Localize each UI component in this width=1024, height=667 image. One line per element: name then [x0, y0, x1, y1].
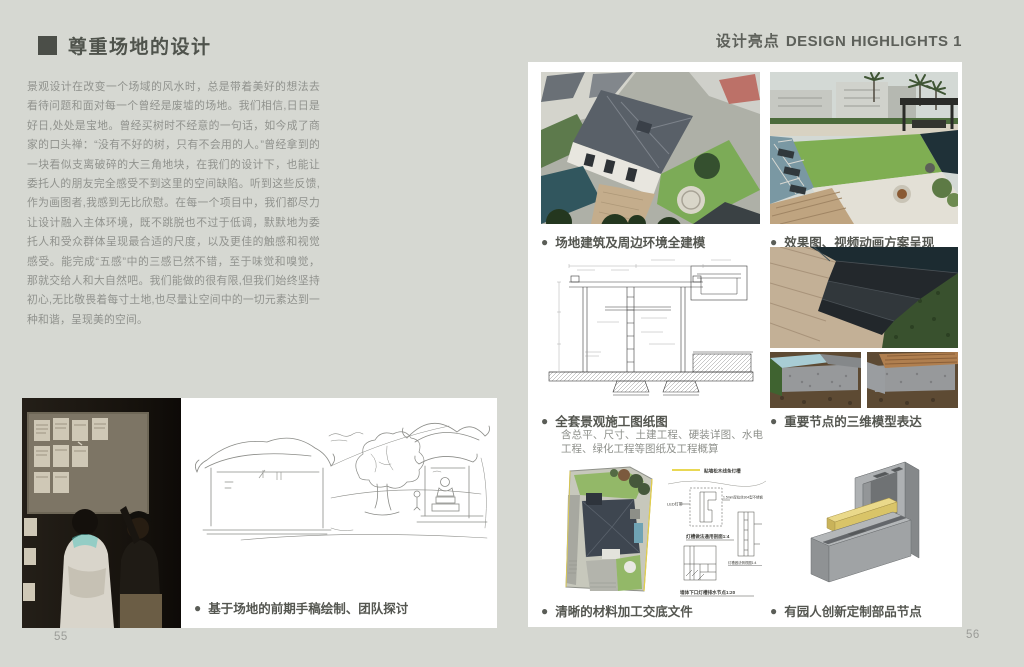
right-page-panel: ● 场地建筑及周边环境全建模 ● 效果图、视频动画方案呈现: [528, 62, 962, 627]
caption-nodes3d: ● 重要节点的三维模型表达: [770, 411, 922, 430]
bullet-icon: ●: [541, 605, 548, 617]
page-title: 尊重场地的设计: [68, 32, 212, 59]
bullet-icon: ●: [194, 602, 201, 614]
site-plan-image: [556, 465, 658, 597]
right-page-header: 设计亮点DESIGN HIGHLIGHTS 1: [528, 30, 962, 51]
section2-label: 灯槽做法侧视图1:4: [728, 560, 757, 565]
bullet-icon: ●: [541, 236, 548, 248]
caption-custom-parts-text: 有园人创新定制部品节点: [784, 601, 922, 620]
section3-label: 墙体下口灯槽排水节点1:20: [680, 589, 736, 596]
left-figure-caption: ● 基于场地的前期手稿绘制、团队探讨: [194, 598, 408, 617]
bullet-icon: ●: [770, 415, 777, 427]
caption-materials-text: 清晰的材料加工交底文件: [555, 601, 693, 620]
node-detail-b-image: [867, 352, 958, 408]
construction-drawing-image: [541, 252, 760, 407]
intro-paragraph: 景观设计在改变一个场域的风水时，总是带着美好的想法去看待问题和面对每一个曾经是废…: [27, 78, 320, 330]
custom-profile-image: [793, 454, 943, 602]
page-title-block: 尊重场地的设计: [38, 32, 212, 59]
node-detail-a-image: [770, 352, 861, 408]
page-number-left: 55: [54, 631, 68, 643]
caption-custom-parts: ● 有园人创新定制部品节点: [770, 601, 922, 620]
render-image: [770, 72, 958, 224]
left-figure-panel: ● 基于场地的前期手稿绘制、团队探讨: [22, 398, 497, 628]
caption-drawings-note: 含总平、尺寸、土建工程、硬装详图、水电工程、绿化工程等图纸及工程概算: [561, 428, 763, 456]
concept-sketch-image: [181, 398, 497, 628]
left-figure-caption-text: 基于场地的前期手稿绘制、团队探讨: [208, 598, 408, 617]
led-label: LED灯带: [667, 501, 683, 507]
light-trough-detail-image: 贴墙松木线条灯槽 LED灯带 1.5mm厚拉丝304型不锈钢 灯槽做法通用剖面1…: [666, 460, 766, 602]
bullet-icon: ●: [770, 605, 777, 617]
book-spread: 尊重场地的设计 景观设计在改变一个场域的风水时，总是带着美好的想法去看待问题和面…: [0, 0, 1024, 667]
title-square-icon: [38, 36, 57, 55]
bullet-icon: ●: [541, 415, 548, 427]
bullet-icon: ●: [770, 236, 777, 248]
section1-label: 灯槽做法通用剖面1:4: [686, 533, 730, 540]
caption-materials: ● 清晰的材料加工交底文件: [541, 601, 693, 620]
team-discussion-photo: [22, 398, 181, 628]
caption-nodes3d-text: 重要节点的三维模型表达: [784, 411, 922, 430]
steel-label: 1.5mm厚拉丝304型不锈钢: [723, 495, 763, 500]
header-chinese: 设计亮点: [716, 33, 780, 50]
caption-modeling-text: 场地建筑及周边环境全建模: [555, 232, 705, 251]
page-number-right: 56: [966, 629, 980, 641]
pool-edge-render-image: [770, 247, 958, 348]
caption-modeling: ● 场地建筑及周边环境全建模: [541, 232, 705, 251]
legend-label: 贴墙松木线条灯槽: [704, 468, 741, 475]
site-model-image: [541, 72, 760, 224]
header-english: DESIGN HIGHLIGHTS 1: [786, 33, 962, 50]
